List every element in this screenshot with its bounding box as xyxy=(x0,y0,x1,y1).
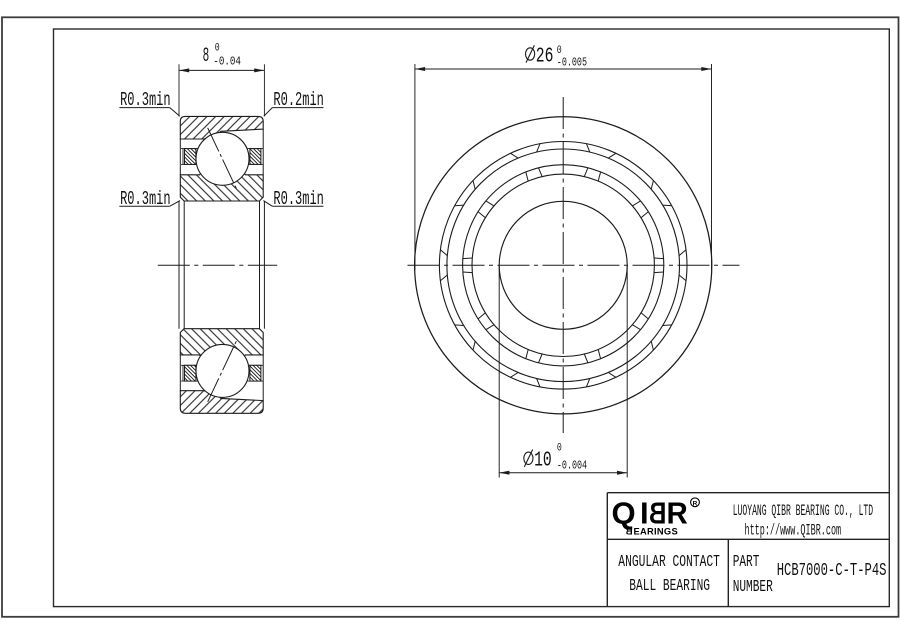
svg-text:NUMBER: NUMBER xyxy=(733,578,773,597)
svg-text:EARINGS: EARINGS xyxy=(634,526,678,536)
svg-text:-0.005: -0.005 xyxy=(557,56,587,70)
svg-text:0: 0 xyxy=(557,44,562,56)
svg-text:0: 0 xyxy=(215,41,220,53)
svg-text:-0.04: -0.04 xyxy=(213,55,241,68)
svg-text:Q: Q xyxy=(612,495,636,530)
svg-text:8: 8 xyxy=(203,45,210,67)
svg-text:R0.3min: R0.3min xyxy=(120,189,171,211)
svg-text:-0.004: -0.004 xyxy=(557,459,587,473)
svg-text:R0.3min: R0.3min xyxy=(273,189,324,211)
svg-text:26: 26 xyxy=(536,45,554,68)
svg-text:R0.2min: R0.2min xyxy=(273,90,324,112)
svg-text:0: 0 xyxy=(557,442,562,454)
svg-text:BALL BEARING: BALL BEARING xyxy=(629,577,710,596)
svg-text:B: B xyxy=(626,526,633,537)
svg-text:PART: PART xyxy=(733,553,760,572)
svg-text:10: 10 xyxy=(534,449,552,472)
svg-text:LUOYANG QIBR BEARING CO., LTD: LUOYANG QIBR BEARING CO., LTD xyxy=(733,501,873,520)
svg-text:B: B xyxy=(649,495,666,530)
svg-text:I: I xyxy=(640,495,649,530)
svg-text:http://www.QIBR.com: http://www.QIBR.com xyxy=(745,521,842,540)
svg-text:R: R xyxy=(666,497,687,531)
svg-text:R0.3min: R0.3min xyxy=(120,90,171,112)
svg-text:HCB7000-C-T-P4S: HCB7000-C-T-P4S xyxy=(777,560,887,581)
svg-text:ANGULAR CONTACT: ANGULAR CONTACT xyxy=(618,553,720,572)
svg-text:R: R xyxy=(693,500,698,507)
